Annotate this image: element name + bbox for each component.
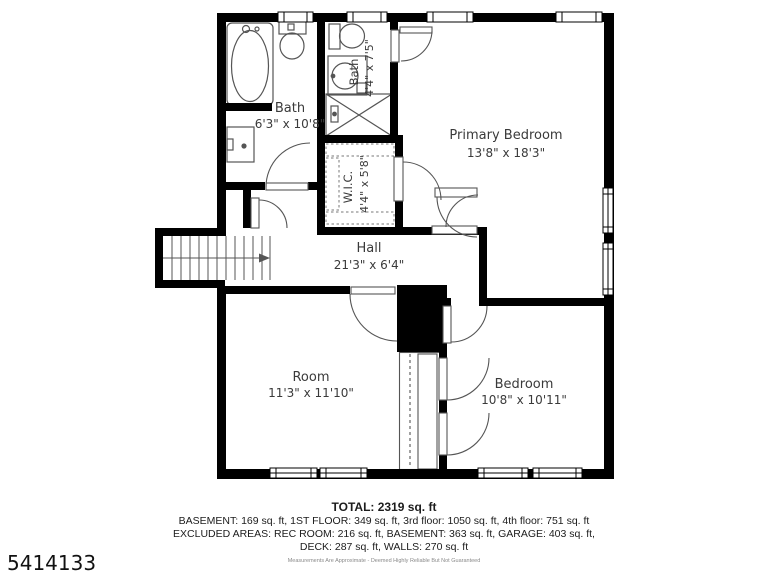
room-dims-room: 11'3" x 11'10" — [268, 386, 354, 400]
bedroom-door-arc — [451, 306, 487, 342]
window — [556, 12, 602, 22]
closet-shaft — [400, 353, 441, 470]
small-bath-door-leaf — [400, 27, 432, 33]
vanity-sink-main-bath — [227, 127, 254, 162]
landing-door-arc — [259, 200, 287, 228]
toilet-main-bath — [279, 21, 306, 59]
window — [603, 188, 613, 233]
room-label-bedroom: Bedroom — [495, 377, 554, 392]
summary-line-deck-walls: DECK: 287 sq. ft, WALLS: 270 sq. ft — [0, 541, 768, 553]
listing-id: 5414133 — [7, 551, 96, 575]
window — [533, 468, 582, 478]
room-dims-hall: 21'3" x 6'4" — [334, 258, 405, 272]
small-bath-door-panel — [391, 30, 399, 62]
room-dims-primary-bedroom: 13'8" x 18'3" — [467, 146, 545, 160]
room-label-bath: Bath — [275, 101, 305, 116]
summary-total: TOTAL: 2319 sq. ft — [0, 500, 768, 514]
summary-line-floors: BASEMENT: 169 sq. ft, 1ST FLOOR: 349 sq.… — [0, 515, 768, 527]
window — [478, 468, 528, 478]
room-dims-bath: 6'3" x 10'8" — [255, 117, 326, 131]
room-dims-bedroom: 10'8" x 10'11" — [481, 393, 567, 407]
floorplan-drawing: Bath 6'3" x 10'8" Bath 4'4" x 7'5" W.I.C… — [0, 0, 768, 576]
window — [347, 12, 387, 22]
window — [278, 12, 313, 22]
room-label-room: Room — [292, 370, 329, 385]
landing-door-panel — [251, 198, 259, 228]
room-label-hall: Hall — [357, 241, 382, 256]
stairs-direction-arrow — [259, 254, 270, 263]
window — [270, 468, 317, 478]
hall-corner-door-arc — [446, 195, 478, 227]
floorplan-page: Bath 6'3" x 10'8" Bath 4'4" x 7'5" W.I.C… — [0, 0, 768, 576]
walls — [155, 13, 614, 479]
bathtub — [227, 23, 273, 105]
window — [320, 468, 367, 478]
room-label-wic: W.I.C. — [341, 171, 355, 203]
bedroom-closet-door2-panel — [439, 413, 447, 455]
measurements-disclaimer: Measurements Are Approximate - Deemed Hi… — [0, 558, 768, 564]
shower — [326, 94, 392, 136]
bath-door-panel — [266, 183, 308, 190]
bath-door-arc — [266, 143, 310, 187]
room-dims-bath-small: 4'4" x 7'5" — [363, 39, 376, 97]
bedroom-door-panel — [443, 306, 451, 343]
room-door-arc — [350, 294, 397, 341]
bedroom-closet-door2-arc — [447, 413, 489, 455]
toilet-small-bath — [329, 24, 365, 49]
bedroom-closet-door1-panel — [439, 358, 447, 400]
room-label-primary-bedroom: Primary Bedroom — [449, 128, 562, 143]
window — [603, 243, 613, 295]
room-label-bath-small: Bath — [347, 59, 361, 86]
window — [427, 12, 473, 22]
small-bath-door-arc — [401, 31, 432, 61]
staircase — [163, 236, 270, 280]
summary-line-excluded: EXCLUDED AREAS: REC ROOM: 216 sq. ft, BA… — [0, 528, 768, 540]
primary-door1-panel — [394, 157, 403, 201]
room-door-panel — [351, 287, 395, 294]
room-dims-wic: 4'4" x 5'8" — [358, 155, 371, 213]
